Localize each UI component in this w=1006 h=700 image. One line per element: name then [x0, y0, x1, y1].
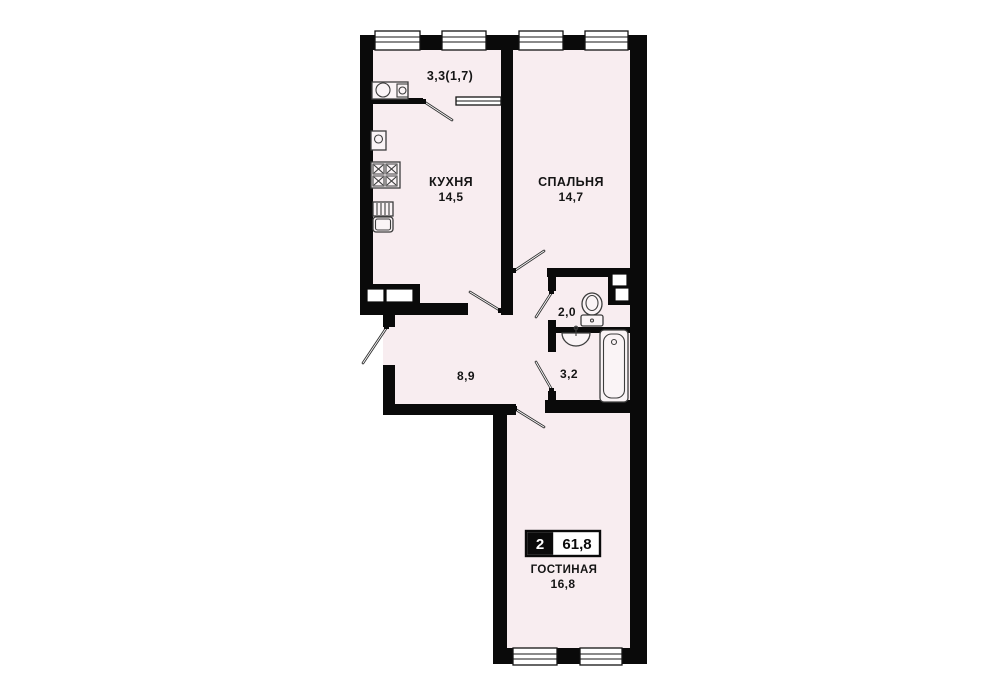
bedroom-name-label: СПАЛЬНЯ: [538, 175, 604, 189]
balcony-area-label: 3,3(1,7): [427, 69, 473, 83]
kitchen-name-label: КУХНЯ: [429, 175, 473, 189]
wall-bathroom-bottom: [545, 400, 647, 413]
window-balcony-divider: [456, 97, 501, 105]
duct-box-small: [367, 289, 384, 302]
apartment-badge: 2 61,8: [526, 531, 600, 556]
vent-shaft-box-top: [612, 274, 627, 286]
wall-right: [630, 35, 647, 664]
stove-icon: [371, 162, 400, 188]
floor-plan-svg: 3,3(1,7) КУХНЯ 14,5 СПАЛЬНЯ 14,7 2,0 3,2…: [0, 0, 1006, 700]
wall-living-left: [493, 404, 507, 664]
hallway-area-label: 8,9: [457, 369, 475, 383]
wall-wc-bath-stub: [548, 320, 556, 352]
window-living-2: [580, 648, 622, 665]
badge-total-area: 61,8: [562, 536, 591, 553]
window-balcony-1: [375, 31, 420, 50]
living-room-name-label: ГОСТИНАЯ: [531, 564, 598, 576]
room-living-floor: [500, 404, 636, 654]
window-bedroom-1: [519, 31, 563, 50]
vent-shaft-box-bottom: [615, 288, 629, 301]
wc-area-label: 2,0: [558, 305, 576, 319]
kitchen-area-label: 14,5: [439, 190, 464, 204]
duct-box-large: [386, 289, 413, 302]
wall-kitchen-bedroom-divider: [501, 50, 513, 315]
window-bedroom-2: [585, 31, 628, 50]
kitchen-sink-icon: [373, 202, 393, 232]
washer-icon: [371, 131, 386, 150]
living-room-area-label: 16,8: [551, 577, 576, 591]
toilet-icon: [581, 293, 603, 326]
bathtub-icon: [600, 330, 628, 402]
wall-entry-stub-bottom: [383, 365, 395, 406]
wall-wc-stub-top: [548, 277, 556, 291]
balcony-sink-icon: [372, 82, 408, 99]
window-living-1: [513, 648, 557, 665]
badge-rooms-count: 2: [536, 536, 544, 553]
entry-doorway-floor: [383, 327, 395, 365]
bedroom-area-label: 14,7: [559, 190, 584, 204]
bathroom-area-label: 3,2: [560, 367, 578, 381]
floor-plan-page: 3,3(1,7) КУХНЯ 14,5 СПАЛЬНЯ 14,7 2,0 3,2…: [0, 0, 1006, 700]
window-balcony-2: [442, 31, 486, 50]
